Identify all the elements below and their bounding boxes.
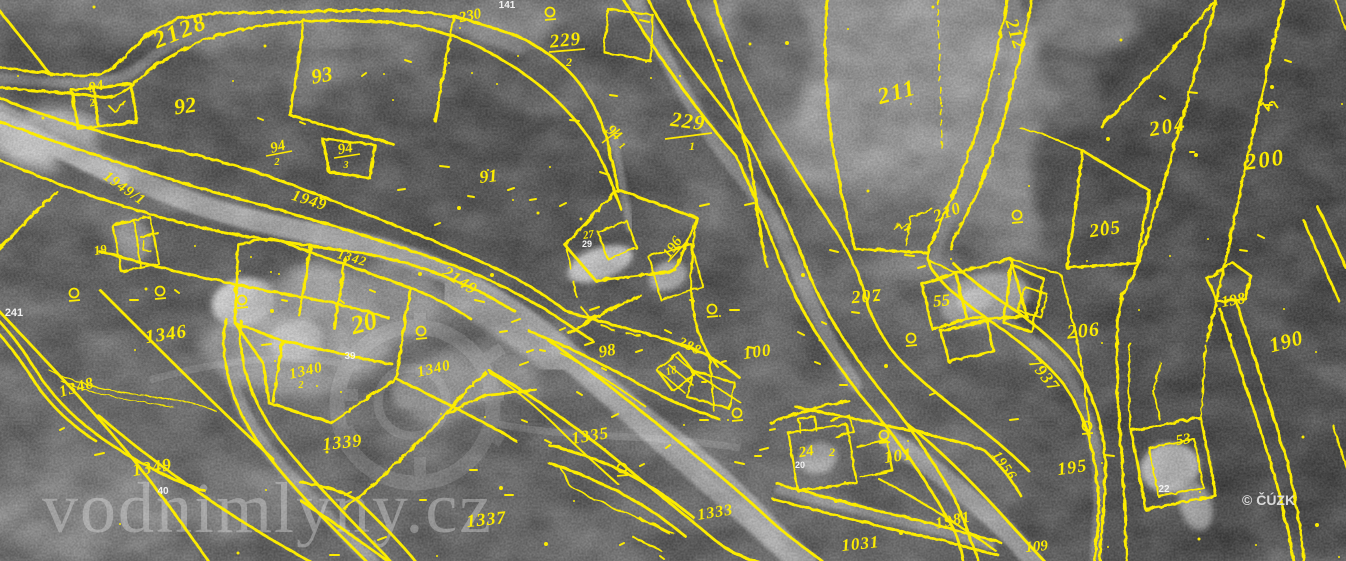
svg-text:91: 91 [478,165,498,187]
svg-text:141: 141 [499,0,516,11]
svg-text:1337: 1337 [465,507,507,531]
svg-text:1339: 1339 [321,430,363,454]
svg-text:2: 2 [298,380,304,391]
svg-text:22: 22 [1158,484,1170,495]
svg-text:29: 29 [582,239,592,249]
svg-text:229: 229 [668,107,706,136]
svg-text:241: 241 [5,307,23,319]
svg-text:3: 3 [343,160,349,171]
svg-text:195: 195 [1056,455,1088,479]
svg-text:© ČÚZK: © ČÚZK [1242,491,1295,508]
svg-text:2: 2 [274,157,280,168]
svg-text:39: 39 [344,351,356,362]
svg-text:2: 2 [828,445,835,459]
svg-text:206: 206 [1065,318,1101,343]
svg-text:1: 1 [689,139,695,153]
svg-text:101: 101 [883,444,914,467]
svg-text:40: 40 [157,486,169,497]
svg-text:24: 24 [797,443,816,462]
svg-text:20: 20 [795,460,805,470]
svg-text:55: 55 [932,290,951,310]
svg-text:100: 100 [742,340,773,363]
svg-text:92: 92 [172,92,197,120]
svg-text:2: 2 [565,55,572,69]
svg-text:109: 109 [1025,538,1049,556]
svg-text:207: 207 [850,285,883,308]
svg-text:93: 93 [309,61,334,88]
svg-text:1031: 1031 [841,532,881,555]
